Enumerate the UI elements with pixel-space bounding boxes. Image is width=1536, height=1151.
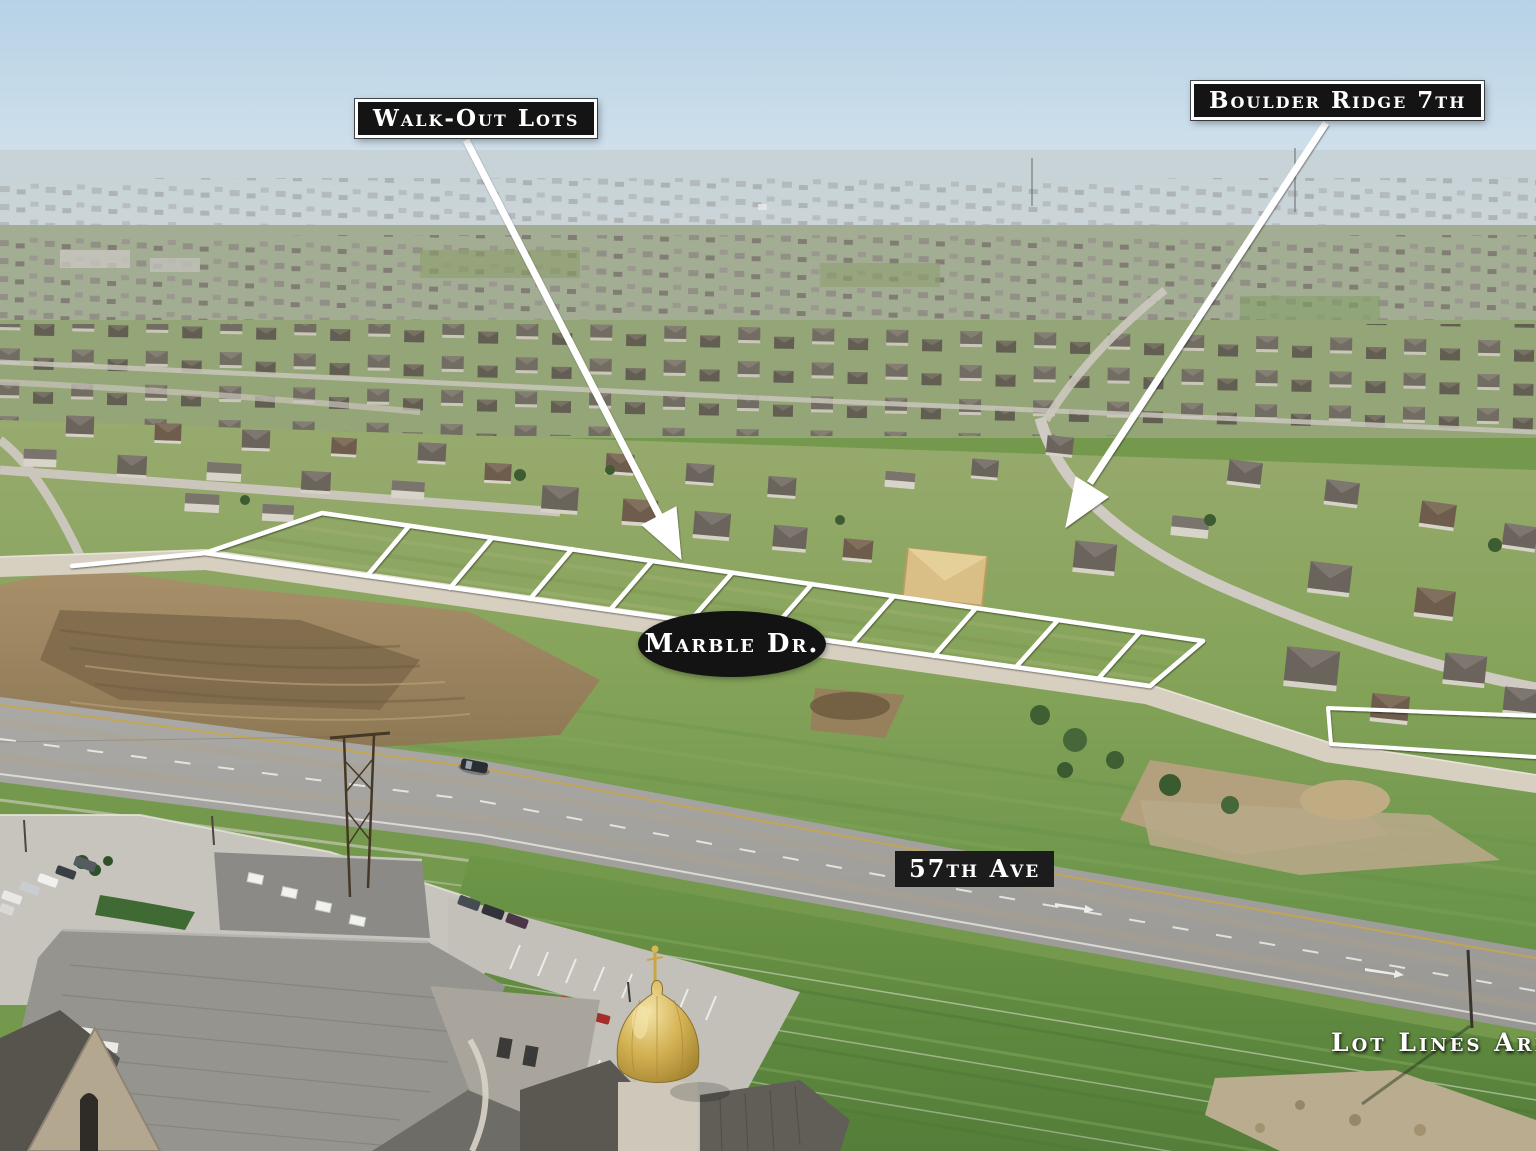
walkout-lots-label-text: Walk-Out Lots <box>373 105 579 132</box>
boulder-ridge-label: Boulder Ridge 7th <box>1191 81 1484 120</box>
arched-window <box>80 1093 98 1151</box>
lot-lines-disclaimer-text: Lot Lines Are A <box>1331 1028 1536 1057</box>
aerial-scene <box>0 0 1536 1151</box>
distant-suburbs <box>0 225 1536 333</box>
57th-ave-label: 57th Ave <box>895 851 1054 887</box>
boulder-ridge-label-text: Boulder Ridge 7th <box>1209 87 1466 114</box>
marble-drive-label-text: Marble Dr. <box>645 629 820 659</box>
marble-drive-label: Marble Dr. <box>638 611 826 677</box>
lot-lines-disclaimer: Lot Lines Are A <box>1331 1028 1536 1057</box>
walkout-lots-label: Walk-Out Lots <box>355 99 597 138</box>
aerial-photo-container: Walk-Out Lots Boulder Ridge 7th Marble D… <box>0 0 1536 1151</box>
57th-ave-label-text: 57th Ave <box>909 854 1040 883</box>
skylight-block <box>214 851 430 938</box>
